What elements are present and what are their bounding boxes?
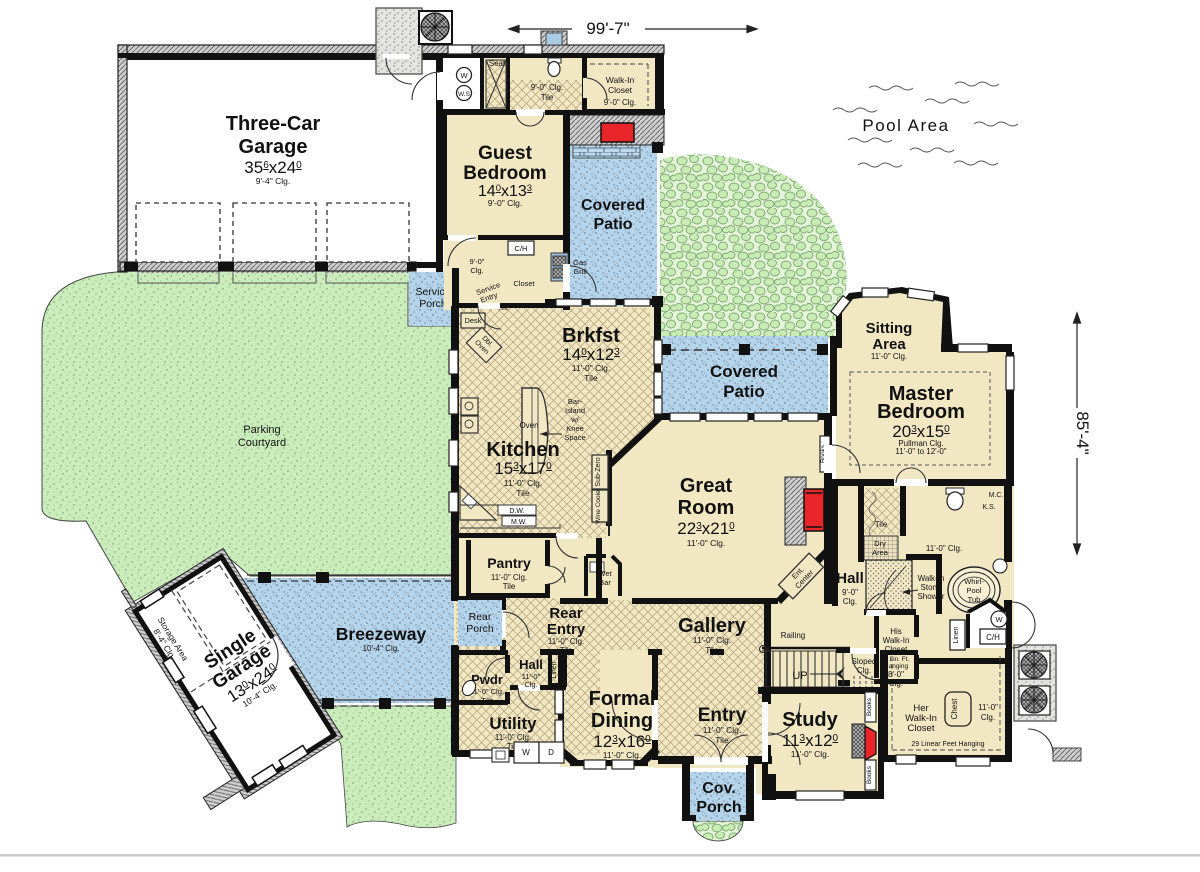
svg-text:UP: UP — [792, 670, 807, 682]
svg-text:153x170: 153x170 — [494, 459, 552, 478]
svg-text:Bedroom: Bedroom — [463, 163, 546, 184]
svg-text:Sitting: Sitting — [866, 320, 913, 337]
svg-text:10'-4" Clg.: 10'-4" Clg. — [363, 644, 400, 653]
svg-text:Hall: Hall — [519, 657, 543, 672]
svg-text:9'-0" Clg.: 9'-0" Clg. — [604, 98, 636, 107]
svg-text:Tile: Tile — [875, 520, 888, 529]
svg-text:Rear: Rear — [549, 605, 583, 622]
svg-text:29 Linear Feet Hanging: 29 Linear Feet Hanging — [911, 741, 984, 748]
svg-text:C/H: C/H — [515, 244, 528, 253]
svg-text:Closet: Closet — [908, 723, 935, 734]
svg-text:Clg.: Clg. — [981, 713, 995, 722]
svg-text:9'-0" Clg.: 9'-0" Clg. — [531, 83, 563, 92]
svg-text:Space: Space — [564, 433, 585, 442]
svg-text:Covered: Covered — [710, 362, 778, 381]
svg-text:Whirl-: Whirl- — [964, 577, 984, 586]
svg-text:Books: Books — [866, 765, 873, 784]
svg-text:9'-4" Clg.: 9'-4" Clg. — [256, 176, 290, 186]
svg-text:W: W — [995, 615, 1003, 624]
svg-text:G Lin. Ft.: G Lin. Ft. — [883, 656, 910, 663]
svg-text:Courtyard: Courtyard — [238, 437, 286, 449]
svg-text:Bar-: Bar- — [568, 397, 583, 406]
svg-text:Wine Cooler: Wine Cooler — [595, 487, 602, 524]
svg-text:Formal: Formal — [589, 688, 656, 710]
svg-text:Tile: Tile — [584, 373, 598, 383]
svg-text:11'-0" Clg.: 11'-0" Clg. — [687, 538, 726, 548]
svg-text:Oven: Oven — [519, 421, 538, 430]
svg-text:Entry: Entry — [698, 705, 747, 726]
svg-text:Tile: Tile — [715, 735, 729, 745]
svg-text:99'-7": 99'-7" — [586, 19, 629, 38]
svg-text:Patio: Patio — [723, 382, 765, 401]
svg-text:W: W — [522, 748, 530, 757]
svg-text:Great: Great — [680, 475, 733, 497]
svg-text:Garage: Garage — [239, 136, 308, 158]
svg-text:11'-0" Clg.: 11'-0" Clg. — [603, 750, 642, 760]
svg-text:Covered: Covered — [581, 197, 645, 214]
svg-text:11'-0" Clg.: 11'-0" Clg. — [491, 573, 527, 582]
svg-text:W: W — [460, 71, 468, 80]
svg-text:85'-4": 85'-4" — [1073, 411, 1092, 454]
svg-text:Bedroom: Bedroom — [877, 401, 965, 423]
svg-text:Porch: Porch — [466, 623, 494, 635]
svg-text:Kitchen: Kitchen — [486, 439, 559, 461]
svg-text:Sloped: Sloped — [852, 657, 877, 666]
svg-text:11'-0" Clg.: 11'-0" Clg. — [548, 637, 584, 646]
svg-text:Books: Books — [866, 697, 873, 716]
svg-text:11'-0" Clg.: 11'-0" Clg. — [871, 352, 907, 361]
svg-text:Walk-In: Walk-In — [606, 75, 635, 85]
svg-text:Chest: Chest — [950, 698, 959, 720]
svg-text:11'-0" Clg.: 11'-0" Clg. — [791, 749, 830, 759]
svg-text:Knee: Knee — [566, 424, 584, 433]
svg-text:Three-Car: Three-Car — [226, 113, 321, 135]
svg-text:M.W.: M.W. — [511, 519, 527, 526]
svg-text:Clg.: Clg. — [524, 680, 537, 689]
svg-text:Tile: Tile — [705, 645, 719, 655]
svg-text:Closet: Closet — [608, 85, 633, 95]
svg-text:Dining: Dining — [591, 710, 653, 732]
svg-text:Tile: Tile — [541, 93, 554, 102]
svg-text:Dry: Dry — [874, 539, 886, 548]
svg-text:Clg.: Clg. — [470, 266, 483, 275]
svg-text:Tile: Tile — [516, 488, 530, 498]
svg-text:113x120: 113x120 — [782, 731, 839, 750]
svg-text:123x160: 123x160 — [593, 732, 651, 751]
svg-text:140x123: 140x123 — [562, 345, 620, 364]
svg-text:Room: Room — [678, 497, 735, 519]
svg-text:Seat: Seat — [489, 59, 506, 68]
svg-text:Porch: Porch — [419, 298, 447, 310]
svg-text:Island: Island — [565, 406, 585, 415]
svg-text:Closet: Closet — [885, 645, 908, 654]
svg-text:M.C.: M.C. — [989, 492, 1004, 499]
svg-text:Gallery: Gallery — [678, 615, 747, 637]
svg-text:356x240: 356x240 — [244, 158, 302, 177]
svg-text:Utility: Utility — [489, 714, 537, 733]
svg-text:Closet: Closet — [513, 279, 535, 288]
svg-text:Railing: Railing — [781, 631, 805, 640]
svg-text:C/H: C/H — [986, 633, 1000, 642]
svg-text:Pool Area: Pool Area — [862, 116, 949, 135]
svg-text:Clg.: Clg. — [857, 666, 871, 675]
svg-text:Linen: Linen — [551, 661, 558, 678]
svg-text:9'-0": 9'-0" — [470, 257, 485, 266]
svg-text:Guest: Guest — [478, 143, 533, 164]
svg-text:Pool: Pool — [966, 586, 981, 595]
svg-text:D.W.: D.W. — [509, 508, 524, 515]
svg-text:Sub-Zero: Sub-Zero — [595, 457, 602, 486]
svg-text:His: His — [890, 627, 902, 636]
svg-text:11'-0" Clg.: 11'-0" Clg. — [504, 478, 543, 488]
svg-text:Porch: Porch — [696, 799, 741, 816]
svg-text:D: D — [548, 748, 554, 757]
svg-text:9'-0" Clg.: 9'-0" Clg. — [488, 198, 522, 208]
svg-text:11'-0": 11'-0" — [978, 703, 998, 712]
svg-text:Tile: Tile — [503, 582, 516, 591]
svg-text:Tile: Tile — [560, 646, 573, 655]
svg-text:11'-0" Clg.: 11'-0" Clg. — [703, 725, 742, 735]
svg-text:Tile: Tile — [481, 696, 493, 705]
svg-text:11'-0" Clg.: 11'-0" Clg. — [495, 733, 531, 742]
svg-text:Brkfst: Brkfst — [562, 325, 620, 347]
svg-text:Tub: Tub — [968, 595, 981, 604]
svg-text:Entry: Entry — [547, 621, 586, 638]
svg-text:223x210: 223x210 — [677, 519, 735, 538]
svg-text:Desk: Desk — [464, 316, 481, 325]
svg-text:Cov.: Cov. — [702, 780, 735, 797]
svg-text:11'-0" Clg.: 11'-0" Clg. — [926, 544, 962, 553]
svg-text:8'-0": 8'-0" — [888, 670, 904, 679]
svg-text:Rear: Rear — [469, 611, 492, 623]
svg-text:Area: Area — [872, 548, 889, 557]
svg-text:Linen: Linen — [953, 626, 960, 643]
svg-text:9'-0": 9'-0" — [842, 588, 858, 597]
svg-text:W.S: W.S — [458, 91, 471, 98]
svg-text:11'-0" Clg.: 11'-0" Clg. — [693, 635, 732, 645]
svg-text:K.S.: K.S. — [982, 504, 995, 511]
svg-text:Hanging: Hanging — [884, 663, 909, 670]
svg-text:Breezeway: Breezeway — [336, 624, 427, 644]
svg-text:11'-0" to 12'-0": 11'-0" to 12'-0" — [895, 447, 946, 456]
svg-text:Study: Study — [782, 709, 838, 731]
svg-text:Pantry: Pantry — [487, 555, 531, 571]
svg-text:Hall: Hall — [836, 570, 864, 587]
svg-text:w/: w/ — [570, 415, 579, 424]
svg-text:Area: Area — [872, 336, 906, 353]
svg-text:11'-0" Clg.: 11'-0" Clg. — [572, 363, 611, 373]
svg-text:Parking: Parking — [243, 424, 280, 436]
svg-text:Clg.: Clg. — [843, 597, 857, 606]
svg-text:Gas: Gas — [573, 258, 587, 267]
svg-text:Walk-In: Walk-In — [883, 636, 910, 645]
svg-text:Patio: Patio — [593, 216, 632, 233]
